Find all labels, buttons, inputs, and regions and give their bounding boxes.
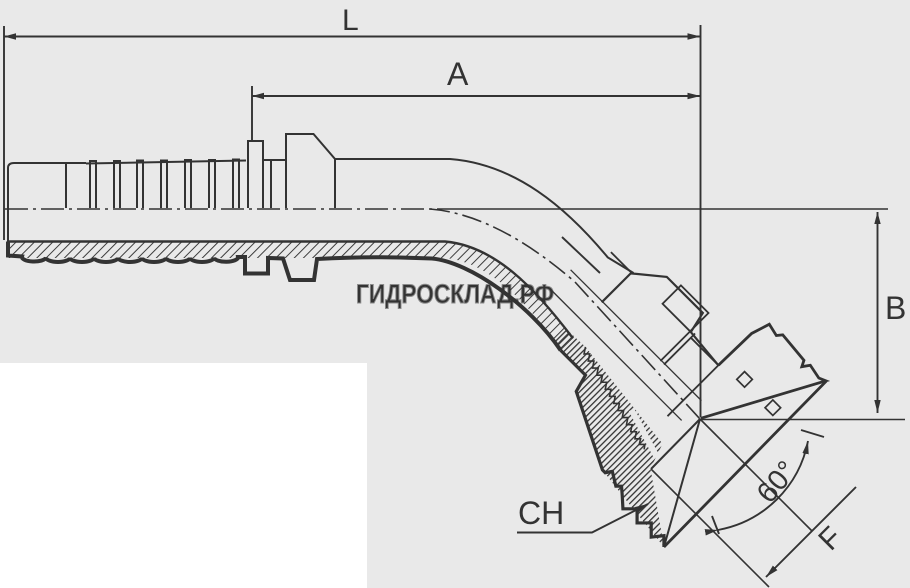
svg-text:A: A <box>447 56 469 92</box>
svg-text:B: B <box>885 290 906 326</box>
svg-text:L: L <box>342 4 359 37</box>
svg-text:CH: CH <box>518 495 564 531</box>
